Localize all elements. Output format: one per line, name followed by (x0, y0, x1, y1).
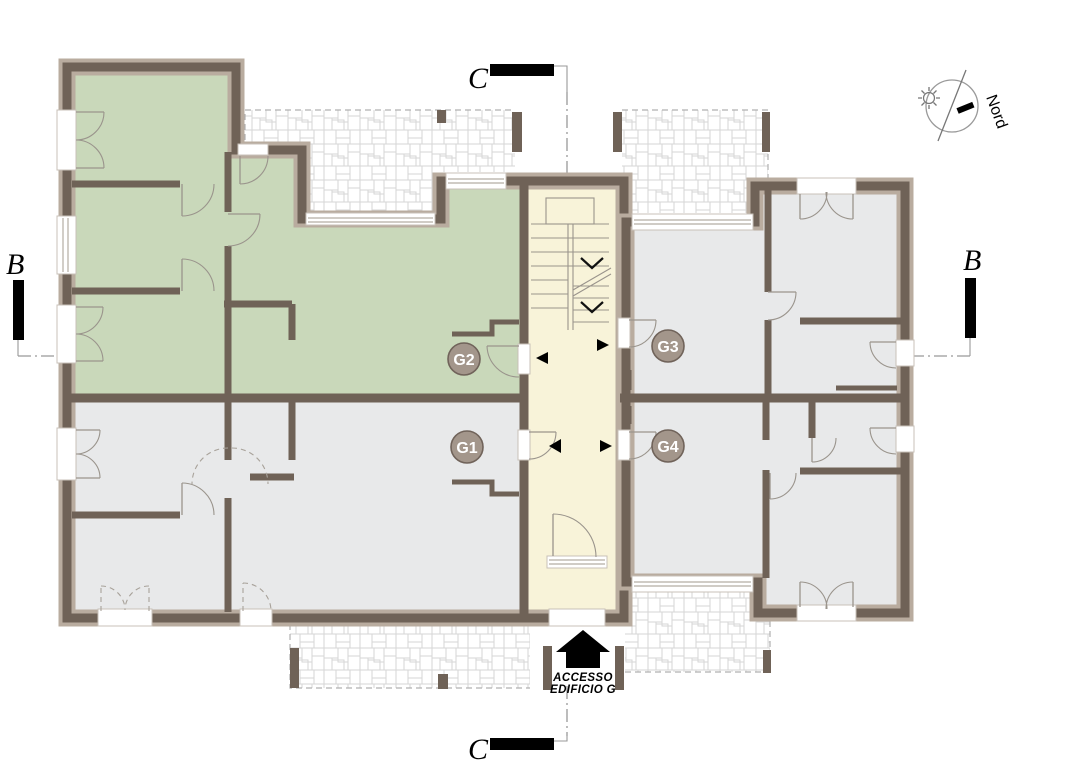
window-left-4 (57, 428, 76, 480)
window-band-g2 (306, 213, 435, 225)
section-c-top-label: C (468, 62, 489, 95)
patio-bottom-right (625, 590, 770, 672)
unit-badge-g1: G1 (451, 431, 483, 463)
window-band-g4 (632, 576, 753, 592)
access-label-line2: EDIFICIO G (550, 684, 616, 696)
door-right-g3 (896, 340, 914, 366)
french-door-bottom-left (98, 609, 152, 626)
unit-floor-g1 (72, 402, 520, 614)
french-door-top-right (797, 178, 856, 194)
floor-plan-page: G2 G1 G3 G4 C C B (0, 0, 1076, 780)
entrance-opening (549, 609, 605, 626)
window-left-2 (57, 216, 76, 274)
section-c-bottom-bar (490, 738, 554, 750)
window-band-g3 (632, 214, 753, 230)
door-right-g4 (896, 426, 914, 452)
unit-badge-g2: G2 (448, 343, 480, 375)
door-bottom-left (240, 609, 272, 626)
entrance-threshold (547, 556, 607, 568)
section-marker-c-top: C (468, 62, 567, 95)
section-marker-c-bottom: C (468, 733, 567, 766)
section-b-left-bar (13, 280, 24, 340)
section-b-left-label: B (6, 248, 24, 281)
unit-badge-g4: G4 (652, 430, 684, 462)
north-indicator: Nord (918, 70, 1010, 141)
unit-badge-g1-label: G1 (456, 440, 477, 457)
unit-badge-g4-label: G4 (657, 439, 678, 456)
door-corridor-g3 (618, 318, 630, 348)
unit-badge-g3-label: G3 (657, 339, 678, 356)
section-c-top-bar (490, 64, 554, 76)
north-label: Nord (982, 93, 1010, 131)
window-g2-top (446, 173, 506, 189)
sun-icon (918, 87, 940, 109)
door-corridor-g2 (518, 344, 530, 374)
building-entrance: ACCESSO EDIFICIO G (550, 630, 616, 696)
window-left-3 (57, 305, 76, 363)
door-top-room (238, 144, 268, 155)
unit-badge-g3: G3 (652, 330, 684, 362)
section-marker-b-right: B (963, 244, 981, 356)
section-marker-b-left: B (6, 248, 24, 356)
entrance-arrow (556, 630, 610, 668)
section-b-right-label: B (963, 244, 981, 277)
door-corridor-g1 (518, 430, 530, 460)
window-left-1 (57, 110, 76, 170)
north-tick (956, 102, 974, 114)
door-corridor-g4 (618, 430, 630, 460)
floor-plan-canvas: G2 G1 G3 G4 C C B (0, 0, 1076, 780)
section-b-right-bar (965, 278, 976, 338)
patio-bottom-left (290, 624, 530, 688)
unit-badge-g2-label: G2 (453, 352, 474, 369)
patio-top-right (622, 110, 768, 213)
access-label-line1: ACCESSO (552, 672, 613, 684)
section-c-bottom-label: C (468, 733, 489, 766)
